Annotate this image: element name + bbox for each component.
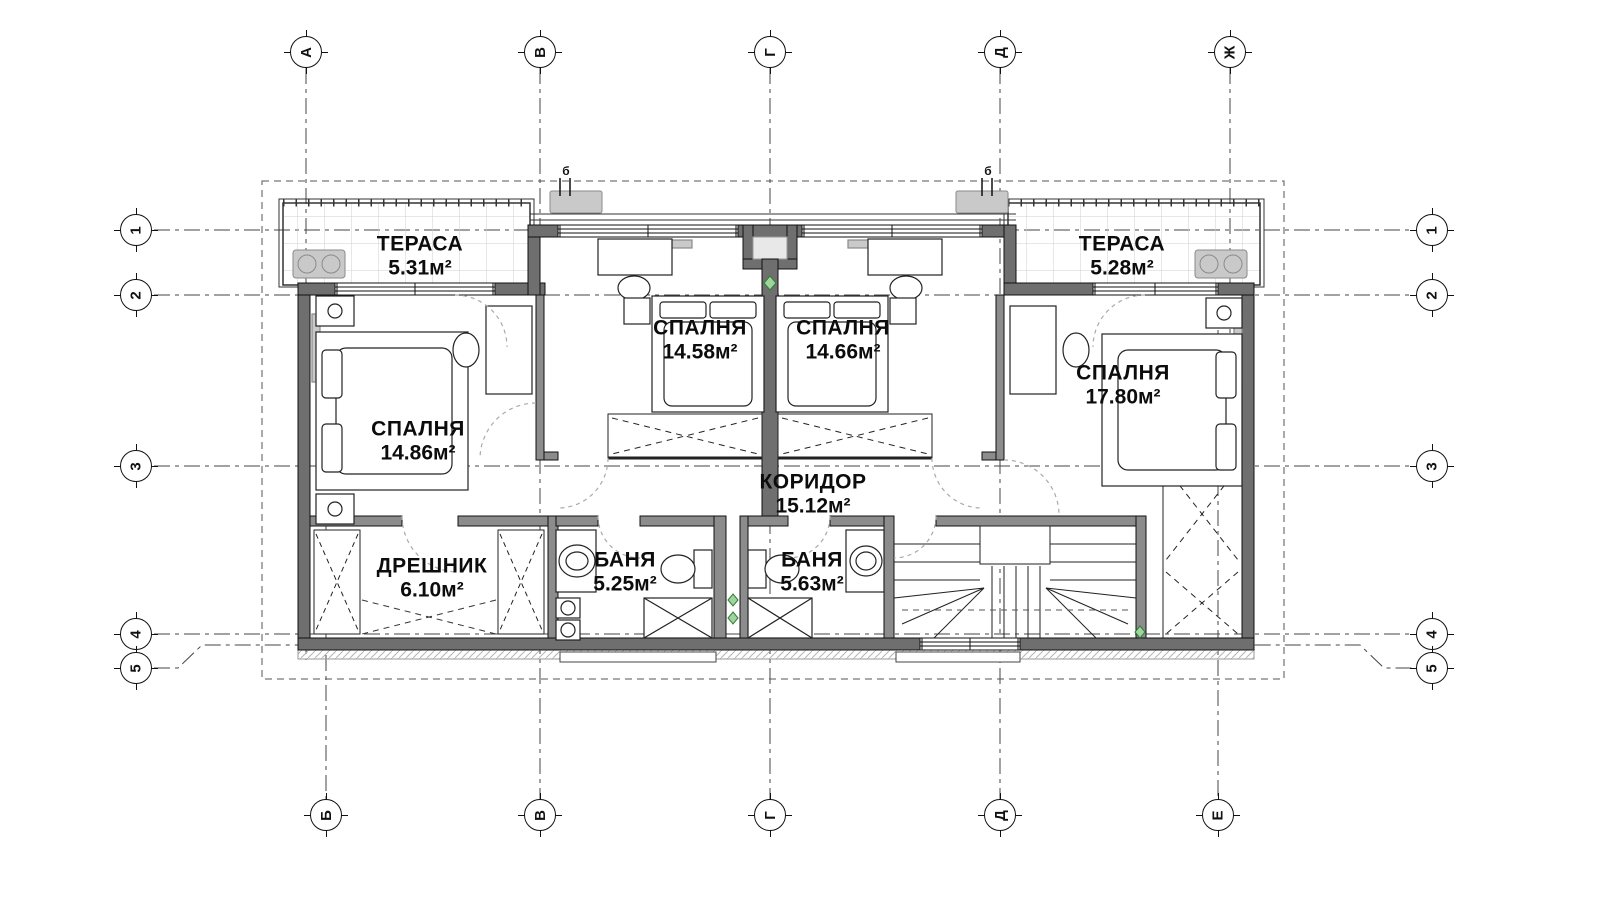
axis-bottom-Е: Е — [1202, 799, 1234, 831]
axis-tick — [321, 52, 328, 53]
room-name: ДРЕШНИК — [377, 554, 488, 578]
axis-label: Д — [992, 47, 1009, 58]
room-name: СПАЛНЯ — [796, 316, 890, 340]
room-label-баня-8: БАНЯ5.25м² — [593, 548, 656, 595]
axis-tick — [136, 208, 137, 215]
axis-label: Г — [761, 48, 778, 57]
room-area: 17.80м² — [1076, 385, 1170, 409]
room-area: 5.25м² — [593, 572, 656, 596]
axis-top-Ж: Ж — [1214, 36, 1246, 68]
axis-tick — [114, 230, 121, 231]
room-name: СПАЛНЯ — [1076, 361, 1170, 385]
axis-tick — [1447, 466, 1454, 467]
axis-tick — [1410, 230, 1417, 231]
axis-tick — [555, 815, 562, 816]
axis-label: 1 — [128, 226, 145, 234]
axis-tick — [1410, 466, 1417, 467]
room-label-дрешник-7: ДРЕШНИК6.10м² — [377, 554, 488, 601]
axis-tick — [1447, 668, 1454, 669]
room-area: 14.86м² — [371, 441, 465, 465]
room-label-спалня-3: СПАЛНЯ14.66м² — [796, 316, 890, 363]
axis-tick — [1432, 444, 1433, 451]
axis-tick — [1000, 67, 1001, 74]
axis-label: А — [298, 47, 315, 58]
axis-tick — [1230, 67, 1231, 74]
axis-label: Д — [992, 810, 1009, 821]
room-name: БАНЯ — [593, 548, 656, 572]
axis-tick — [136, 481, 137, 488]
axis-tick — [151, 230, 158, 231]
axis-tick — [136, 444, 137, 451]
room-label-коридор-6: КОРИДОР15.12м² — [759, 470, 866, 517]
room-area: 14.66м² — [796, 340, 890, 364]
room-label-спалня-5: СПАЛНЯ17.80м² — [1076, 361, 1170, 408]
room-name: ТЕРАСА — [1079, 232, 1165, 256]
axis-label: В — [532, 47, 549, 58]
axis-top-Г: Г — [754, 36, 786, 68]
axis-tick — [1230, 30, 1231, 37]
axis-label: 1 — [1424, 226, 1441, 234]
axis-bottom-Д: Д — [984, 799, 1016, 831]
axis-tick — [114, 668, 121, 669]
axis-tick — [114, 634, 121, 635]
axis-tick — [114, 466, 121, 467]
room-label-баня-9: БАНЯ5.63м² — [780, 548, 843, 595]
axis-tick — [978, 815, 985, 816]
room-name: БАНЯ — [780, 548, 843, 572]
axis-tick — [1015, 815, 1022, 816]
room-area: 5.63м² — [780, 572, 843, 596]
axis-tick — [306, 30, 307, 37]
axis-tick — [151, 466, 158, 467]
axis-bottom-В: В — [524, 799, 556, 831]
axis-label: Ж — [1222, 45, 1239, 59]
axis-left-5: 5 — [120, 652, 152, 684]
axis-right-2: 2 — [1416, 279, 1448, 311]
axis-bottom-Б: Б — [310, 799, 342, 831]
axis-tick — [114, 295, 121, 296]
axis-tick — [326, 793, 327, 800]
axis-label: 3 — [1424, 462, 1441, 470]
axis-right-5: 5 — [1416, 652, 1448, 684]
axis-tick — [1208, 52, 1215, 53]
axis-tick — [284, 52, 291, 53]
axis-tick — [748, 815, 755, 816]
room-label-спалня-4: СПАЛНЯ14.86м² — [371, 417, 465, 464]
axis-label: 5 — [1424, 664, 1441, 672]
room-name: КОРИДОР — [759, 470, 866, 494]
axis-tick — [785, 815, 792, 816]
axis-tick — [785, 52, 792, 53]
axis-tick — [136, 612, 137, 619]
axis-tick — [1432, 273, 1433, 280]
axis-top-В: В — [524, 36, 556, 68]
room-name: СПАЛНЯ — [371, 417, 465, 441]
axis-label: 5 — [128, 664, 145, 672]
section-marker-0: б — [562, 164, 569, 178]
axis-top-А: А — [290, 36, 322, 68]
axis-tick — [326, 830, 327, 837]
axis-tick — [770, 30, 771, 37]
axis-tick — [136, 683, 137, 690]
axis-tick — [540, 830, 541, 837]
axis-tick — [136, 646, 137, 653]
axis-tick — [1432, 646, 1433, 653]
axis-tick — [1432, 310, 1433, 317]
axis-tick — [518, 815, 525, 816]
axis-tick — [1233, 815, 1240, 816]
axis-label: 2 — [1424, 291, 1441, 299]
axis-tick — [1410, 295, 1417, 296]
axis-tick — [518, 52, 525, 53]
axis-label: 4 — [128, 630, 145, 638]
axis-right-3: 3 — [1416, 450, 1448, 482]
floorplan-page: ТЕРАСА5.31м²ТЕРАСА5.28м²СПАЛНЯ14.58м²СПА… — [0, 0, 1600, 900]
axis-tick — [306, 67, 307, 74]
axis-label: 2 — [128, 291, 145, 299]
axis-tick — [1432, 481, 1433, 488]
axis-tick — [978, 52, 985, 53]
axis-tick — [1432, 683, 1433, 690]
axis-tick — [770, 67, 771, 74]
axis-label: Е — [1209, 810, 1226, 820]
room-name: ТЕРАСА — [377, 232, 463, 256]
axis-tick — [1410, 634, 1417, 635]
axis-tick — [748, 52, 755, 53]
axis-tick — [1432, 612, 1433, 619]
staircase — [894, 526, 1136, 638]
room-label-тераса-0: ТЕРАСА5.31м² — [377, 232, 463, 279]
axis-tick — [1000, 793, 1001, 800]
axis-label: 3 — [128, 462, 145, 470]
axis-tick — [1432, 245, 1433, 252]
axis-left-1: 1 — [120, 214, 152, 246]
section-marker-1: б — [984, 164, 991, 178]
axis-label: Б — [318, 810, 335, 821]
axis-left-2: 2 — [120, 279, 152, 311]
axis-tick — [1447, 230, 1454, 231]
room-area: 15.12м² — [759, 494, 866, 518]
axis-label: В — [532, 810, 549, 821]
axis-tick — [770, 830, 771, 837]
axis-tick — [770, 793, 771, 800]
axis-left-3: 3 — [120, 450, 152, 482]
axis-right-1: 1 — [1416, 214, 1448, 246]
axis-tick — [136, 245, 137, 252]
axis-tick — [151, 668, 158, 669]
axis-tick — [136, 273, 137, 280]
axis-label: Г — [761, 811, 778, 820]
room-label-спалня-2: СПАЛНЯ14.58м² — [653, 316, 747, 363]
floorplan-drawing — [0, 0, 1600, 900]
axis-tick — [136, 310, 137, 317]
room-area: 5.31м² — [377, 256, 463, 280]
axis-tick — [1447, 295, 1454, 296]
axis-tick — [540, 30, 541, 37]
axis-tick — [151, 295, 158, 296]
axis-tick — [555, 52, 562, 53]
axis-top-Д: Д — [984, 36, 1016, 68]
axis-tick — [540, 793, 541, 800]
axis-label: 4 — [1424, 630, 1441, 638]
axis-tick — [1196, 815, 1203, 816]
room-area: 14.58м² — [653, 340, 747, 364]
axis-tick — [1218, 793, 1219, 800]
room-label-тераса-1: ТЕРАСА5.28м² — [1079, 232, 1165, 279]
axis-tick — [1410, 668, 1417, 669]
room-area: 5.28м² — [1079, 256, 1165, 280]
axis-tick — [540, 67, 541, 74]
axis-tick — [1015, 52, 1022, 53]
axis-tick — [1000, 30, 1001, 37]
axis-tick — [304, 815, 311, 816]
axis-tick — [1245, 52, 1252, 53]
axis-tick — [1447, 634, 1454, 635]
room-area: 6.10м² — [377, 578, 488, 602]
axis-tick — [151, 634, 158, 635]
axis-tick — [1432, 208, 1433, 215]
axis-tick — [341, 815, 348, 816]
axis-bottom-Г: Г — [754, 799, 786, 831]
axis-tick — [1000, 830, 1001, 837]
axis-tick — [1218, 830, 1219, 837]
room-name: СПАЛНЯ — [653, 316, 747, 340]
